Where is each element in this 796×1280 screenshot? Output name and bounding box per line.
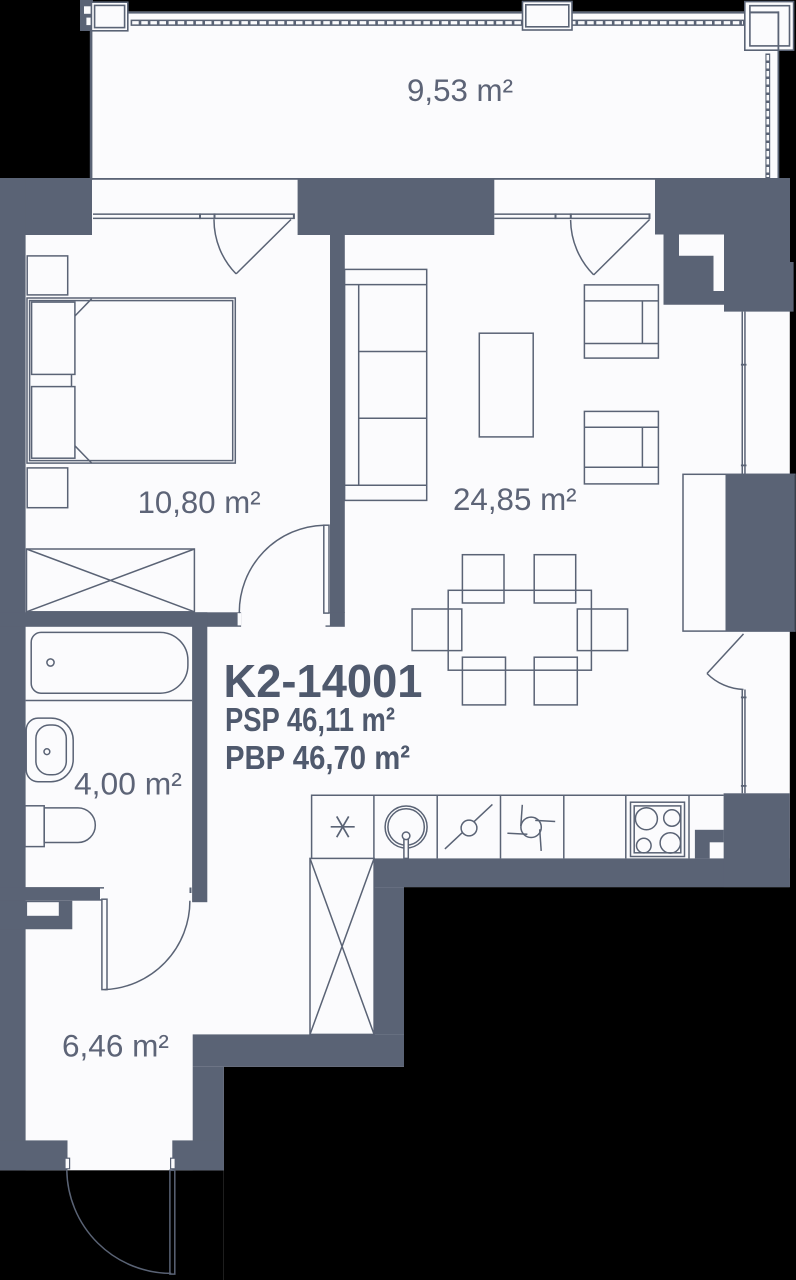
svg-text:4,00 m²: 4,00 m² <box>74 766 182 801</box>
svg-text:6,46 m²: 6,46 m² <box>62 1028 169 1063</box>
svg-text:PBP 46,70 m²: PBP 46,70 m² <box>225 740 410 777</box>
svg-text:9,53 m²: 9,53 m² <box>407 73 513 108</box>
svg-text:PSP 46,11 m²: PSP 46,11 m² <box>225 702 395 739</box>
svg-text:10,80 m²: 10,80 m² <box>138 485 261 520</box>
svg-text:K2-14001: K2-14001 <box>224 655 423 707</box>
svg-text:24,85 m²: 24,85 m² <box>453 482 577 517</box>
